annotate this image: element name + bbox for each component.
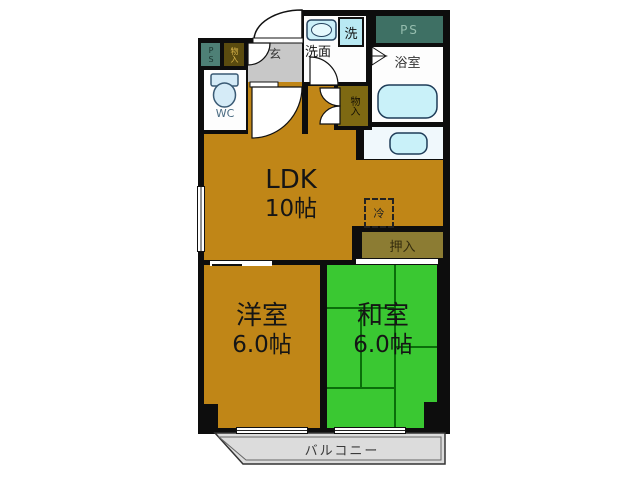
ldk-size: 10帖 [230,196,352,222]
hall-door-leaf [250,82,278,87]
washroom-door-arc [310,57,338,85]
kitchen-sink-icon [390,133,427,154]
japanese-name: 和室 [327,302,439,332]
ldk-name: LDK [230,166,352,196]
label-japanese: 和室 6.0帖 [327,302,439,358]
label-western: 洋室 6.0帖 [204,302,320,358]
western-size: 6.0帖 [204,332,320,358]
entrance-threshold [253,38,303,43]
label-washroom: 洗面 [305,41,349,60]
storage-door-upper [320,88,340,106]
floorplan: PS 物入 洗 PS 物入 冷 押入 [0,0,640,480]
label-entrance: 玄 [248,45,302,62]
western-name: 洋室 [204,302,320,332]
label-wc: WC [204,107,246,120]
bathtub-icon [378,85,437,118]
label-balcony: バルコニー [272,440,412,459]
label-ldk: LDK 10帖 [230,166,352,222]
toilet-icon [211,74,238,107]
storage-door-lower [320,106,340,124]
entrance-door-arc [254,10,302,40]
japanese-size: 6.0帖 [327,332,439,358]
sink-icon [307,20,336,40]
label-bath: 浴室 [372,52,443,71]
hall-door-arc [252,87,302,138]
fixtures-layer [0,0,640,480]
